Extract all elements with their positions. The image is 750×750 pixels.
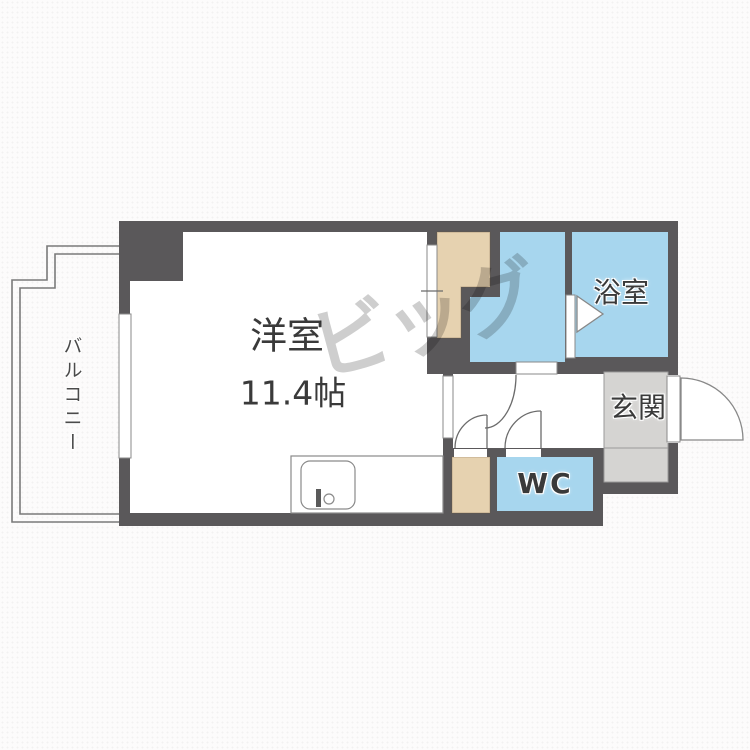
entrance-label: 玄関 xyxy=(610,394,666,422)
kitchen-faucet xyxy=(316,489,321,507)
kitchen-drain xyxy=(324,494,334,504)
laundry-door-opening xyxy=(454,449,487,457)
hallway-floor xyxy=(453,374,604,448)
entrance-floor xyxy=(604,372,668,482)
entrance-door-leaf xyxy=(667,376,680,442)
bathroom-label: 浴室 xyxy=(593,279,649,307)
balcony-label: バルコニー xyxy=(62,336,81,456)
balcony-window xyxy=(119,314,131,458)
toilet-label: WC xyxy=(517,470,572,498)
floor-plan: バルコニー 洋室 11.4帖 浴室 玄関 WC ビッグ xyxy=(0,0,750,750)
laundry-space-floor xyxy=(452,457,490,513)
bathroom-door-jamb xyxy=(566,295,575,358)
hallway-door-opening xyxy=(443,376,453,438)
entrance-door-swing xyxy=(681,378,743,440)
washroom-door-opening xyxy=(516,362,557,374)
toilet-door-opening xyxy=(506,449,541,457)
